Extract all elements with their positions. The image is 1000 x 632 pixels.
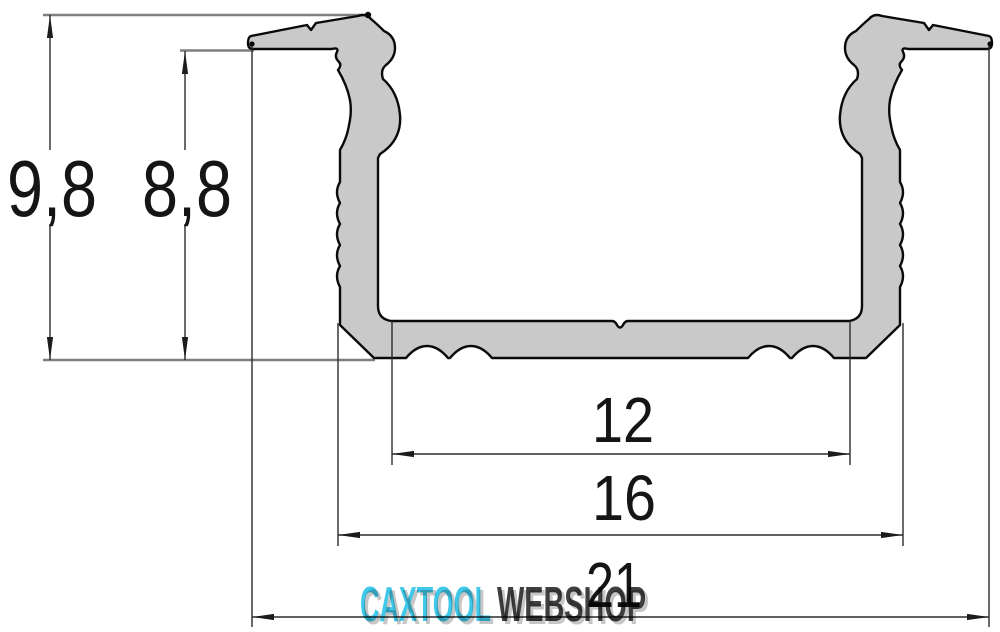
arrowhead-left-12: [392, 451, 414, 457]
dimension-label-height-outer: 9,8: [7, 144, 97, 233]
reference-point-top-left: [365, 12, 371, 18]
dimension-label-width-mid: 16: [592, 462, 656, 534]
arrowhead-right-16: [881, 532, 903, 538]
dimension-label-height-inner: 8,8: [142, 144, 232, 233]
watermark-suffix: WEBSHOP: [497, 578, 646, 632]
watermark-brand: CAXTOOL: [360, 578, 491, 632]
arrowhead-up-outer: [47, 15, 53, 38]
arrowhead-right-21: [967, 614, 989, 620]
arrowhead-left-16: [338, 532, 360, 538]
reference-point-flange-left: [249, 41, 254, 46]
arrowhead-down-outer: [47, 337, 53, 360]
arrowhead-up-inner: [182, 51, 188, 74]
technical-drawing-canvas: 9,8 8,8 12 16 21 CAXTOOL WEBSHOP CAXTOOL…: [0, 0, 1000, 632]
arrowhead-right-12: [828, 451, 850, 457]
arrowhead-left-21: [252, 614, 274, 620]
dimension-label-width-inner: 12: [592, 384, 654, 456]
aluminium-profile-outline: [248, 15, 992, 358]
reference-point-flange-right: [987, 41, 992, 46]
profile-drawing-svg: 9,8 8,8 12 16 21 CAXTOOL WEBSHOP CAXTOOL…: [0, 0, 1000, 632]
arrowhead-down-inner: [182, 337, 188, 360]
